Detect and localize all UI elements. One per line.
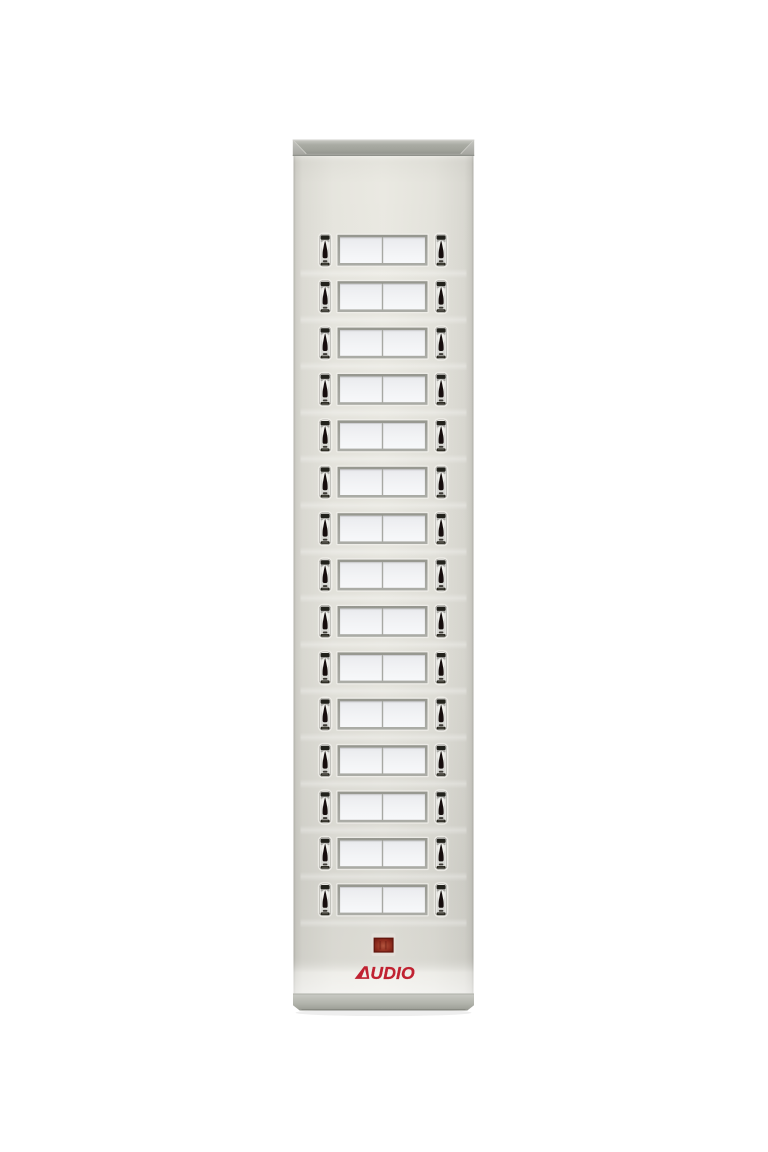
svg-text:UDIO: UDIO: [370, 963, 415, 983]
